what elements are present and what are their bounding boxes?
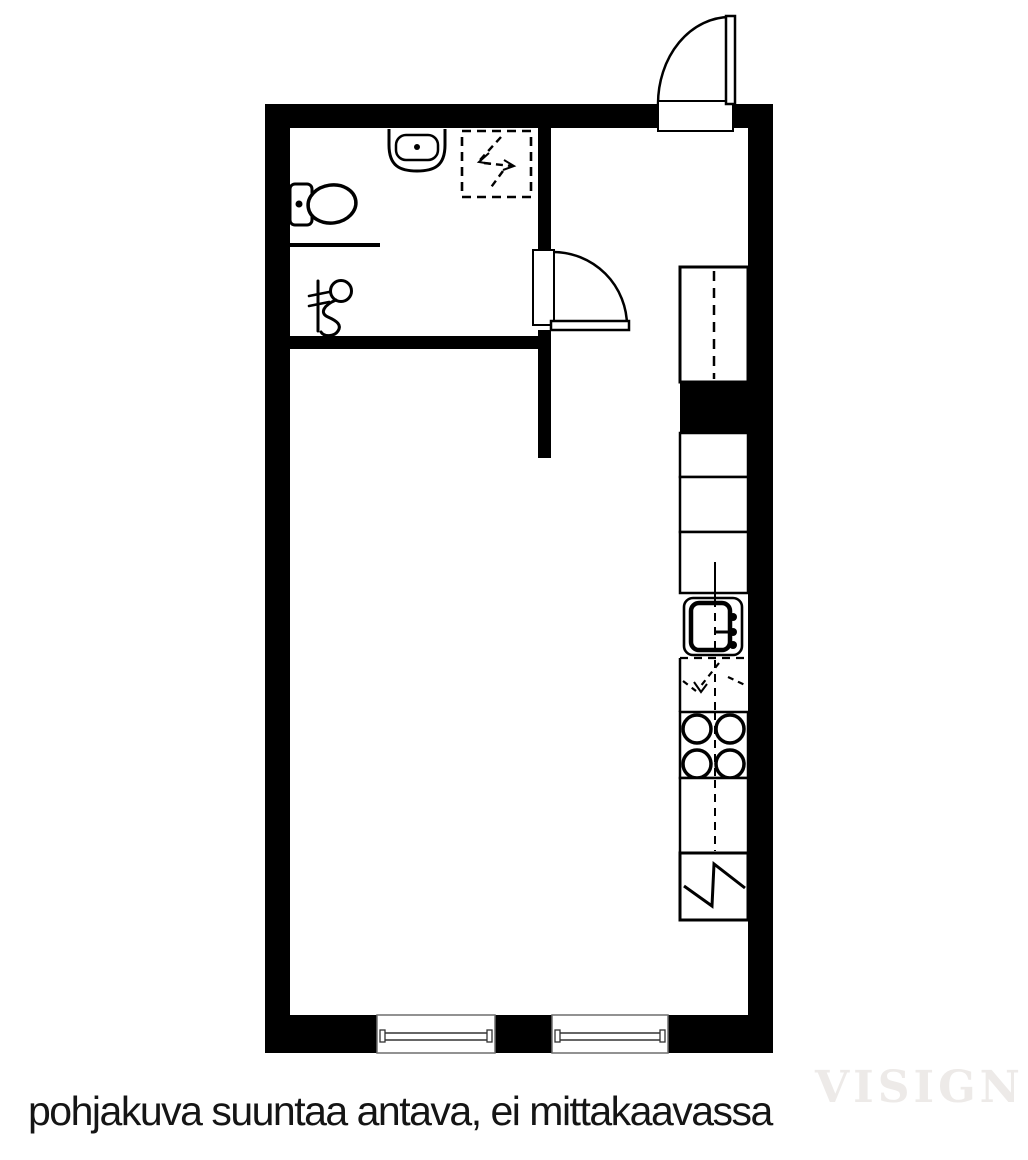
caption-disclaimer: pohjakuva suuntaa antava, ei mittakaavas…	[28, 1088, 772, 1135]
floorplan-page: VISIGN pohjakuva suuntaa antava, ei mitt…	[0, 0, 1028, 1160]
toilet-button	[296, 201, 303, 208]
bathroom-door-arc	[553, 252, 627, 326]
entrance-door-arc	[658, 17, 730, 104]
wall-kitchen-block	[680, 382, 773, 433]
kitchen-cabinet-2	[680, 477, 748, 532]
kitchen-sink-icon	[684, 593, 742, 655]
toilet-bowl	[306, 182, 359, 226]
watermark: VISIGN	[815, 1062, 1024, 1113]
wall-bottom-seg1	[265, 1015, 377, 1053]
window-1	[377, 1015, 495, 1053]
floorplan-drawing	[0, 0, 1028, 1160]
kitchen-cabinet-1	[680, 433, 748, 477]
stove-icon	[680, 712, 748, 778]
wall-bathroom-bottom	[265, 336, 538, 349]
wall-spur-upper	[538, 128, 551, 252]
wall-spur-lower	[538, 330, 551, 458]
dishwasher-reservation-icon	[680, 658, 748, 712]
bathroom-door-leaf	[551, 321, 629, 330]
toilet-icon	[290, 182, 358, 226]
wall-top-left	[265, 104, 658, 128]
entrance-door-leaf	[726, 16, 735, 104]
wall-bottom-seg2	[495, 1015, 552, 1053]
refrigerator-icon	[680, 853, 748, 920]
washbasin-drain	[414, 144, 420, 150]
bathroom-door	[533, 250, 629, 330]
entrance-door-threshold	[658, 101, 733, 131]
tall-cabinet-icon	[680, 267, 748, 382]
washbasin-icon	[389, 129, 445, 171]
bathroom-fixtures	[290, 129, 531, 336]
window-2	[552, 1015, 668, 1053]
wall-bottom-seg3	[668, 1015, 773, 1053]
shower-mixer-icon	[309, 281, 352, 336]
bathroom-door-threshold	[533, 250, 554, 325]
appliance-reservation-icon	[462, 131, 531, 197]
shower-partition-line	[290, 243, 380, 247]
kitchen-fixtures	[680, 267, 748, 920]
wall-right	[748, 104, 773, 1053]
kitchen-cabinet-4	[680, 778, 748, 853]
wall-left	[265, 104, 290, 1053]
entrance-door	[658, 16, 735, 131]
